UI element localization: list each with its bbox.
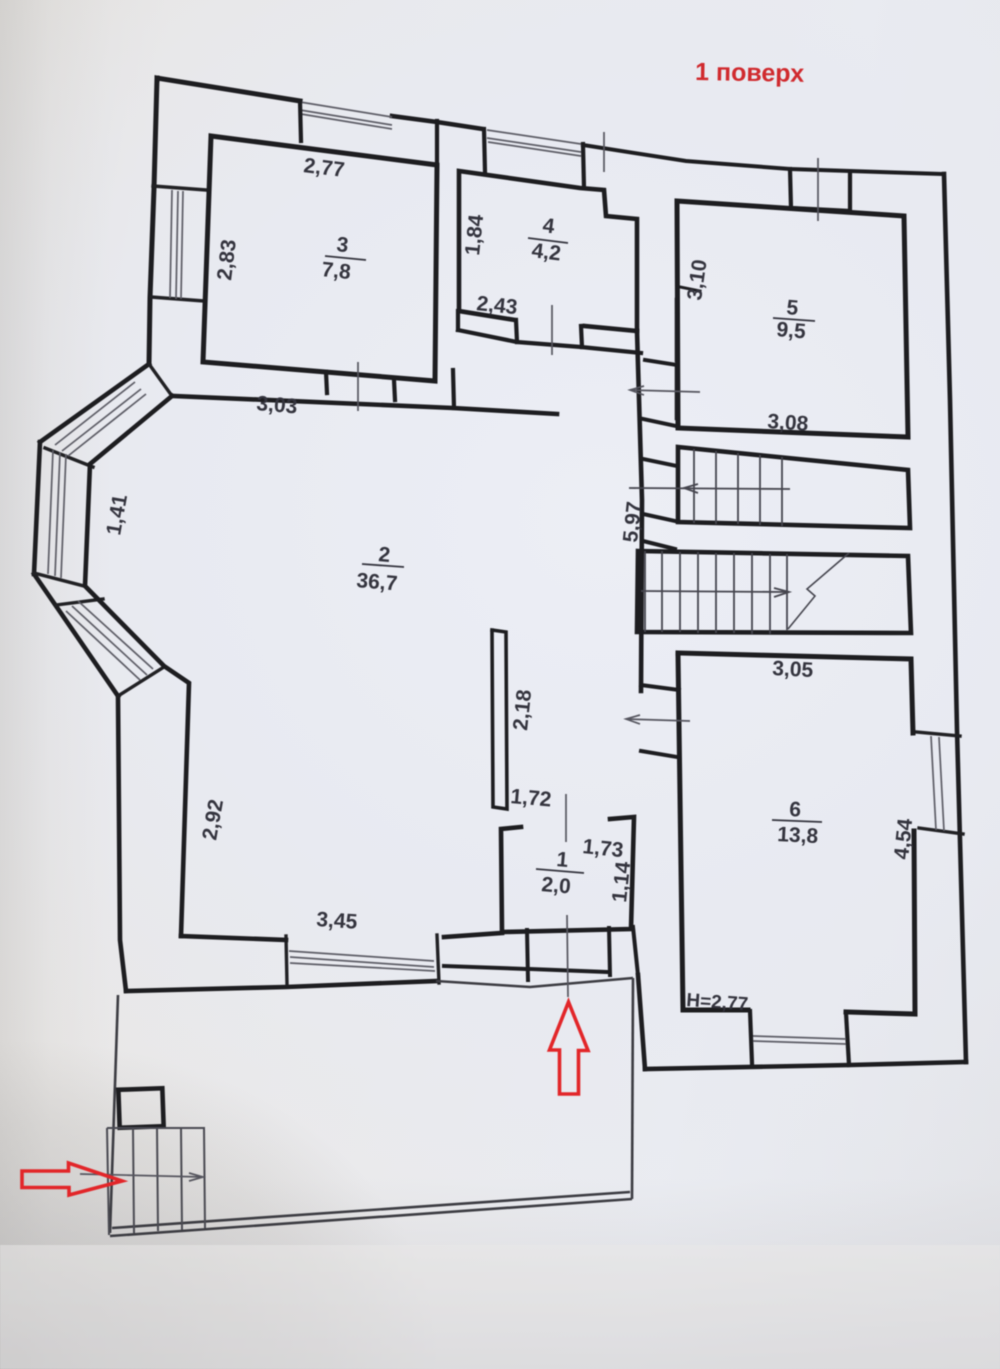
svg-text:7,8: 7,8 (320, 258, 352, 284)
svg-text:3,08: 3,08 (767, 410, 810, 436)
svg-text:2,0: 2,0 (541, 873, 572, 898)
svg-text:6: 6 (789, 798, 802, 822)
svg-text:1,14: 1,14 (608, 860, 635, 903)
svg-text:3,03: 3,03 (256, 392, 299, 418)
svg-text:13,8: 13,8 (777, 823, 819, 848)
svg-text:5: 5 (786, 296, 800, 320)
svg-text:4,2: 4,2 (530, 239, 562, 265)
svg-text:Н=2,77: Н=2,77 (686, 990, 749, 1015)
svg-text:3,10: 3,10 (683, 258, 711, 302)
svg-text:5,97: 5,97 (619, 500, 646, 543)
svg-text:2,77: 2,77 (302, 154, 345, 182)
svg-text:2,43: 2,43 (475, 292, 518, 319)
svg-text:1,72: 1,72 (510, 785, 553, 811)
svg-text:36,7: 36,7 (356, 569, 399, 595)
svg-text:2,18: 2,18 (509, 688, 536, 731)
svg-text:1 поверх: 1 поверх (695, 58, 805, 88)
svg-text:2,92: 2,92 (198, 798, 228, 842)
svg-text:1,41: 1,41 (102, 492, 132, 537)
svg-text:4: 4 (541, 214, 556, 238)
svg-text:3,45: 3,45 (316, 908, 359, 934)
svg-text:1: 1 (556, 848, 570, 872)
svg-text:2: 2 (378, 543, 392, 567)
svg-text:1,84: 1,84 (461, 213, 488, 256)
svg-text:4,54: 4,54 (890, 817, 917, 860)
svg-text:2,83: 2,83 (213, 238, 241, 281)
svg-text:3,05: 3,05 (772, 657, 814, 682)
svg-text:1,73: 1,73 (581, 835, 624, 862)
svg-text:3: 3 (335, 233, 349, 257)
svg-text:9,5: 9,5 (776, 318, 807, 343)
